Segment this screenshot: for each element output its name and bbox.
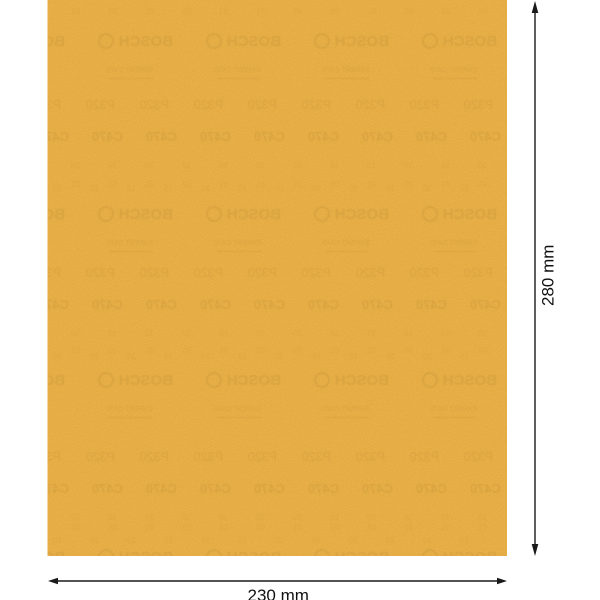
svg-text:P320: P320 bbox=[356, 98, 385, 112]
svg-text:10: 10 bbox=[423, 184, 432, 193]
svg-text:10: 10 bbox=[367, 161, 376, 170]
svg-text:P320: P320 bbox=[140, 98, 169, 112]
svg-text:C470: C470 bbox=[254, 129, 285, 144]
svg-text:01: 01 bbox=[330, 7, 339, 16]
svg-text:10: 10 bbox=[53, 184, 62, 193]
svg-text:01: 01 bbox=[145, 7, 154, 16]
svg-text:10: 10 bbox=[90, 184, 99, 193]
svg-text:10: 10 bbox=[256, 161, 265, 170]
svg-text:01: 01 bbox=[478, 7, 487, 16]
svg-text:01: 01 bbox=[219, 7, 228, 16]
svg-text:BOSCH: BOSCH bbox=[443, 33, 497, 50]
svg-text:C470: C470 bbox=[308, 129, 339, 144]
svg-text:C470: C470 bbox=[146, 129, 177, 144]
svg-text:10: 10 bbox=[478, 161, 487, 170]
svg-text:10: 10 bbox=[145, 161, 154, 170]
svg-text:C470: C470 bbox=[200, 129, 231, 144]
svg-text:10: 10 bbox=[219, 161, 228, 170]
svg-text:10: 10 bbox=[330, 161, 339, 170]
svg-text:P320: P320 bbox=[464, 98, 493, 112]
svg-text:C470: C470 bbox=[92, 129, 123, 144]
svg-text:P320: P320 bbox=[302, 98, 331, 112]
svg-text:01: 01 bbox=[256, 7, 265, 16]
svg-text:10: 10 bbox=[293, 161, 302, 170]
svg-text:EXPERT C470: EXPERT C470 bbox=[214, 67, 261, 74]
svg-text:BOSCH: BOSCH bbox=[227, 33, 281, 50]
svg-text:EXPERT C470: EXPERT C470 bbox=[106, 67, 153, 74]
svg-text:P320: P320 bbox=[410, 98, 439, 112]
svg-text:10: 10 bbox=[238, 184, 247, 193]
svg-text:10: 10 bbox=[312, 184, 321, 193]
svg-text:10: 10 bbox=[460, 184, 469, 193]
svg-text:01: 01 bbox=[182, 7, 191, 16]
svg-text:01: 01 bbox=[71, 7, 80, 16]
svg-text:01: 01 bbox=[367, 7, 376, 16]
svg-text:BOSCH: BOSCH bbox=[335, 33, 389, 50]
svg-text:10: 10 bbox=[164, 184, 173, 193]
svg-text:BOSCH: BOSCH bbox=[119, 33, 173, 50]
svg-text:P320: P320 bbox=[194, 98, 223, 112]
svg-text:10: 10 bbox=[275, 184, 284, 193]
svg-text:10: 10 bbox=[349, 184, 358, 193]
svg-text:C470: C470 bbox=[362, 129, 393, 144]
svg-text:C470: C470 bbox=[416, 129, 447, 144]
svg-text:230 mm: 230 mm bbox=[248, 586, 309, 600]
svg-text:10: 10 bbox=[127, 184, 136, 193]
svg-text:P320: P320 bbox=[248, 98, 277, 112]
svg-text:280 mm: 280 mm bbox=[539, 245, 558, 306]
svg-text:10: 10 bbox=[108, 161, 117, 170]
svg-text:01: 01 bbox=[293, 7, 302, 16]
svg-text:10: 10 bbox=[182, 161, 191, 170]
svg-text:P320: P320 bbox=[86, 98, 115, 112]
svg-text:10: 10 bbox=[386, 184, 395, 193]
svg-text:EXPERT C470: EXPERT C470 bbox=[430, 67, 477, 74]
svg-text:10: 10 bbox=[71, 161, 80, 170]
svg-text:01: 01 bbox=[441, 7, 450, 16]
svg-text:01: 01 bbox=[404, 7, 413, 16]
svg-text:01: 01 bbox=[108, 7, 117, 16]
svg-text:10: 10 bbox=[404, 161, 413, 170]
svg-text:10: 10 bbox=[201, 184, 210, 193]
svg-text:C470: C470 bbox=[470, 129, 501, 144]
svg-text:10: 10 bbox=[441, 161, 450, 170]
svg-text:EXPERT C470: EXPERT C470 bbox=[322, 67, 369, 74]
